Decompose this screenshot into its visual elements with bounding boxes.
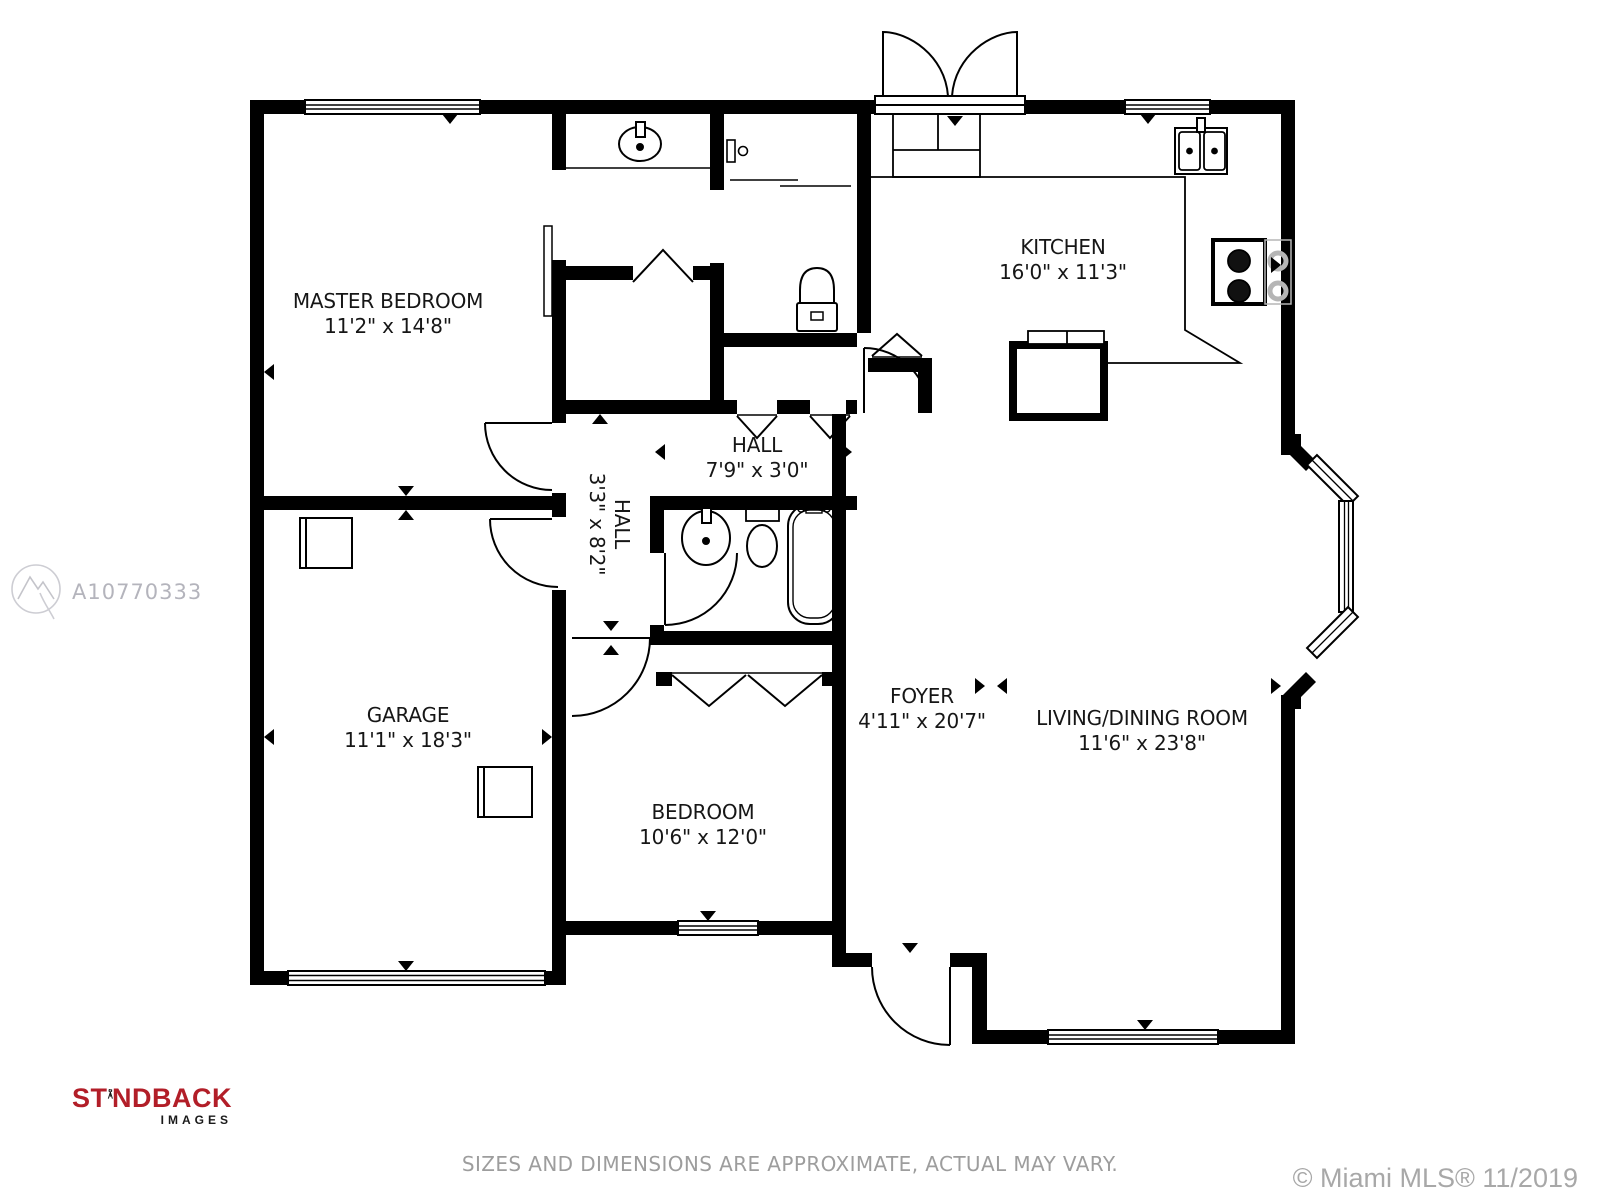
size-disclaimer: SIZES AND DIMENSIONS ARE APPROXIMATE, AC… [462,1152,1118,1176]
room-label-living-dining: LIVING/DINING ROOM 11'6" x 23'8" [1036,706,1248,756]
room-name: KITCHEN [999,235,1127,260]
mls-watermark: A10770333 [10,563,202,621]
bathroom2-fixtures [682,504,840,624]
mls-copyright: © Miami MLS® 11/2019 [1293,1163,1578,1194]
room-label-hall: HALL 7'9" x 3'0" [706,433,809,483]
room-label-kitchen: KITCHEN 16'0" x 11'3" [999,235,1127,285]
shower-icon [727,140,851,186]
room-name: HALL [609,473,634,576]
room-name: BEDROOM [639,800,767,825]
standback-logo: STNDBACK IMAGES [72,1076,232,1127]
room-name: HALL [706,433,809,458]
room-name: FOYER [858,684,986,709]
room-dims: 11'1" x 18'3" [344,728,472,753]
room-label-master-bedroom: MASTER BEDROOM 11'2" x 14'8" [293,289,483,339]
toilet-icon [746,508,779,567]
room-dims: 3'3" x 8'2" [584,473,609,576]
sink-icon [619,122,661,161]
garage-fixtures [300,518,532,817]
floor-plan-page: MASTER BEDROOM 11'2" x 14'8" KITCHEN 16'… [0,0,1600,1200]
room-label-garage: GARAGE 11'1" x 18'3" [344,703,472,753]
french-doors [875,32,1025,114]
room-name: LIVING/DINING ROOM [1036,706,1248,731]
walls [250,100,1295,1044]
floor-plan-drawing [0,0,1600,1200]
room-dims: 11'2" x 14'8" [293,314,483,339]
bathroom1-fixtures [566,122,851,331]
kitchen-sink-icon [1175,118,1227,174]
logo-subtitle: IMAGES [72,1113,232,1127]
room-dims: 4'11" x 20'7" [858,709,986,734]
logo-text-right: NDBACK [112,1085,232,1112]
room-name: MASTER BEDROOM [293,289,483,314]
room-dims: 10'6" x 12'0" [639,825,767,850]
sink-icon [682,508,730,565]
room-label-foyer: FOYER 4'11" x 20'7" [858,684,986,734]
room-dims: 16'0" x 11'3" [999,260,1127,285]
bay-window [1281,434,1358,709]
garage-door [288,971,545,985]
toilet-icon [797,268,837,331]
stove-icon [1213,240,1291,304]
watermark-logo-icon [10,563,64,621]
watermark-id: A10770333 [72,580,202,604]
logo-brand: STNDBACK [72,1076,232,1112]
wall-tick-arrows [264,114,1281,1030]
room-dims: 7'9" x 3'0" [706,458,809,483]
logo-text-left: ST [72,1085,108,1112]
room-label-bedroom: BEDROOM 10'6" x 12'0" [639,800,767,850]
kitchen-peninsula [1013,331,1104,417]
room-label-hall-vertical: HALL 3'3" x 8'2" [584,473,634,576]
room-name: GARAGE [344,703,472,728]
room-dims: 11'6" x 23'8" [1036,731,1248,756]
